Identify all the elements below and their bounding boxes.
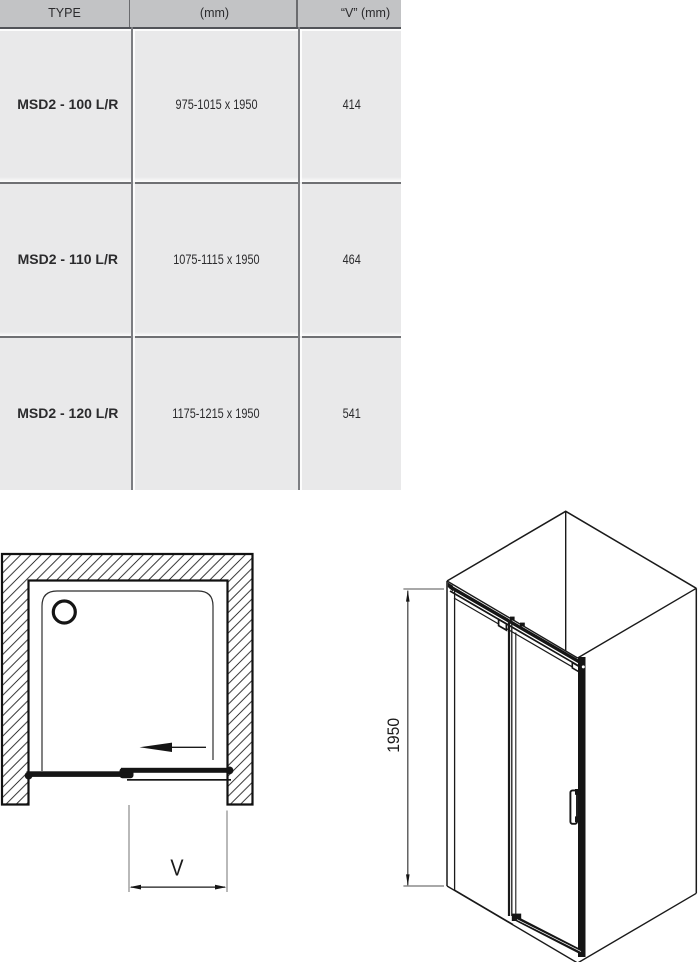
svg-text:1950: 1950 — [385, 718, 403, 753]
svg-text:V: V — [170, 854, 184, 881]
